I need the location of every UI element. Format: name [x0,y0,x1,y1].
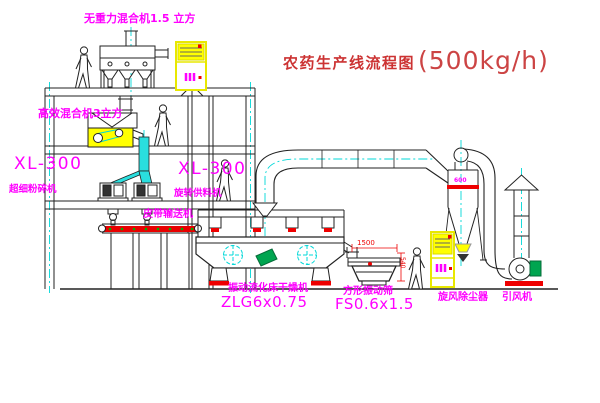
gravity-mixer-drawing [100,31,168,88]
title-capacity: (500kg/h) [418,46,549,75]
exhaust-duct [256,150,448,203]
belt-conveyor-drawing [99,224,202,289]
fan-drawing [505,258,543,286]
stack-drawing [505,175,538,258]
screen-length-dim: 1500 [357,240,375,247]
outlet-pipe [464,149,512,279]
sifter-drawing [344,242,405,285]
label-high-efficiency-mixer: 高效混合机3立方 [38,108,123,119]
label-sifter-model: FS0.6x1.5 [335,297,414,312]
label-mill-center-name: 旋转供料机 [174,189,222,199]
title-text: 农药生产线流程图 [283,46,415,73]
label-gravity-mixer: 无重力混合机1.5 立方 [84,13,195,24]
label-mill-left-name: 超细粉碎机 [9,185,57,195]
label-dryer-model: ZLG6x0.75 [221,295,308,310]
label-belt-conveyor: 皮带输送机 [143,210,193,220]
person-figure [155,105,171,146]
label-mill-left-model: XL-300 [14,156,82,173]
diagram-canvas: 农药生产线流程图 (500kg/h) 无重力混合机1.5 立方 高效混合机3立方… [0,0,600,403]
control-cabinet-2 [431,232,454,287]
cyclone-diameter-dim: 600 [454,178,467,184]
person-figure [409,248,425,289]
label-fan: 引风机 [502,293,532,303]
high-efficiency-mixer-drawing [88,96,143,147]
screen-height-dim: 540 [399,257,405,268]
person-figure [76,47,92,88]
diagram-title: 农药生产线流程图 (500kg/h) [283,46,549,75]
dryer-drawing [196,203,344,286]
label-mill-center-model: XL-300 [178,161,246,178]
label-cyclone: 旋风除尘器 [438,293,488,303]
control-cabinet-1 [176,42,206,90]
